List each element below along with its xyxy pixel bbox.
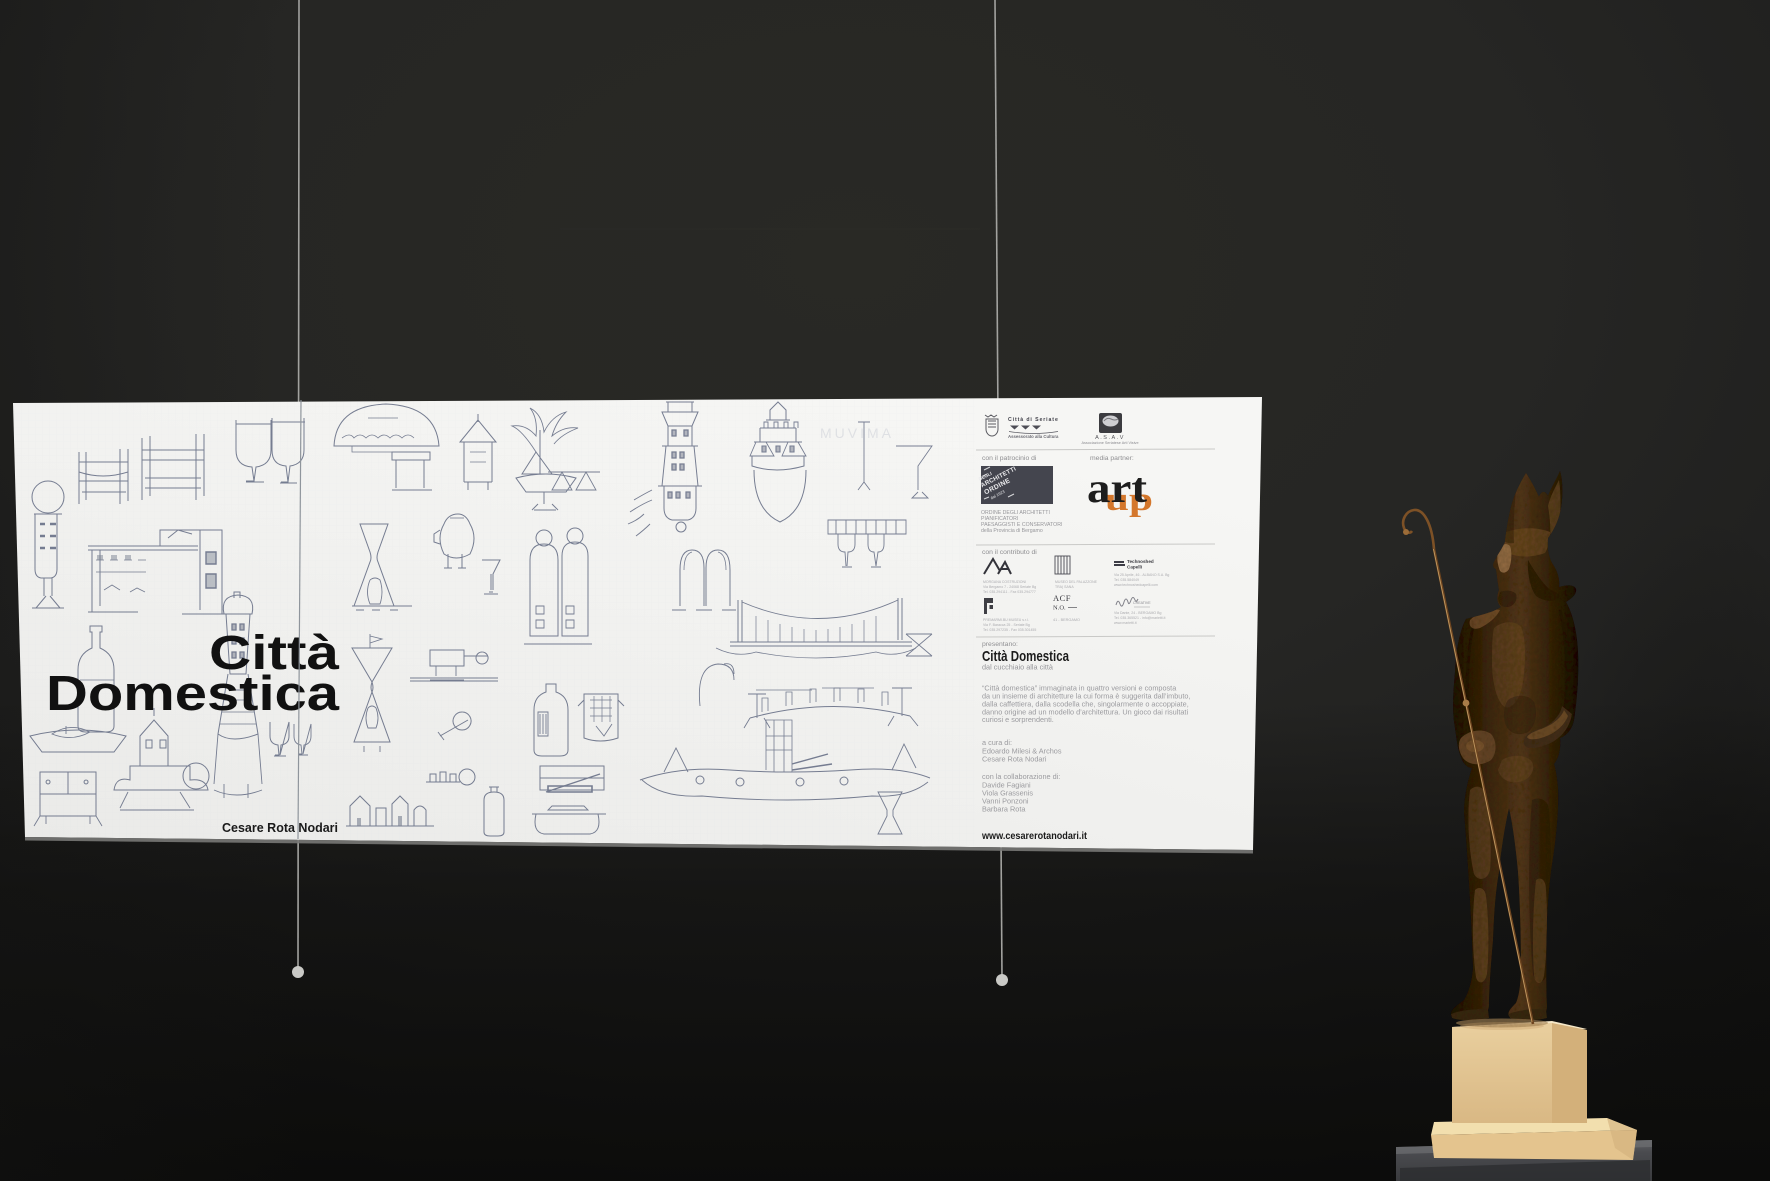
svg-text:Domestica: Domestica	[46, 666, 340, 721]
svg-text:Via Dante, 24 - BERGAMO Bg: Via Dante, 24 - BERGAMO Bg	[1114, 611, 1161, 615]
svg-text:Tel. 035.294111 - Fax 035.2947: Tel. 035.294111 - Fax 035.294777	[983, 590, 1036, 594]
svg-text:www.marietti.it: www.marietti.it	[1114, 621, 1137, 625]
svg-text:con il patrocinio di: con il patrocinio di	[982, 455, 1037, 462]
svg-text:Tel. 035.584049: Tel. 035.584049	[1114, 578, 1139, 582]
svg-text:ACF: ACF	[1053, 593, 1071, 603]
svg-text:Via F. Baracca 25 - Seriate Bg: Via F. Baracca 25 - Seriate Bg	[983, 623, 1030, 627]
svg-text:media partner:: media partner:	[1090, 455, 1134, 462]
svg-text:curiosi e sorprendenti.: curiosi e sorprendenti.	[982, 715, 1054, 724]
svg-text:presentano:: presentano:	[982, 641, 1018, 648]
svg-text:MUSEO DEL PALAZZONE: MUSEO DEL PALAZZONE	[1055, 580, 1098, 584]
svg-text:Barbara Rota: Barbara Rota	[982, 805, 1026, 814]
svg-text:TRA) SANA: TRA) SANA	[1055, 585, 1074, 589]
svg-text:Cesare Rota Nodari: Cesare Rota Nodari	[982, 755, 1047, 764]
svg-text:con il contributo di: con il contributo di	[982, 549, 1037, 556]
svg-text:www.technoshedcapelli.com: www.technoshedcapelli.com	[1114, 583, 1158, 587]
svg-text:Cesare Rota Nodari: Cesare Rota Nodari	[222, 820, 338, 835]
svg-text:41 - BERGAMO: 41 - BERGAMO	[1053, 618, 1080, 622]
svg-text:della Provincia di Bergamo: della Provincia di Bergamo	[981, 528, 1043, 534]
svg-text:Technoshed: Technoshed	[1127, 559, 1154, 564]
svg-text:MUVIMA: MUVIMA	[820, 425, 894, 441]
svg-text:Città di Seriate: Città di Seriate	[1008, 417, 1059, 423]
svg-text:CREATIVE: CREATIVE	[1133, 601, 1151, 605]
svg-text:PREMARMI.BU MUSEU s.r.l.: PREMARMI.BU MUSEU s.r.l.	[983, 618, 1029, 622]
svg-text:N.O.: N.O.	[1053, 605, 1066, 612]
svg-text:art: art	[1087, 466, 1147, 512]
svg-text:Via Bergamo 7 - 24068 Seriate: Via Bergamo 7 - 24068 Seriate Bg	[983, 585, 1036, 589]
svg-text:Capelli: Capelli	[1127, 565, 1142, 570]
svg-text:MORGANA COSTRUZIONI: MORGANA COSTRUZIONI	[983, 580, 1026, 584]
svg-text:www.cesarerotanodari.it: www.cesarerotanodari.it	[981, 830, 1087, 842]
svg-text:Associazione Seriatese Arti Vi: Associazione Seriatese Arti Visive	[1081, 441, 1138, 445]
svg-text:Tel. 035.365521 - info@mariett: Tel. 035.365521 - info@marietti.it	[1114, 616, 1165, 620]
svg-text:Tel. 035.297235 - Fax 035.3014: Tel. 035.297235 - Fax 035.301455	[983, 628, 1036, 632]
svg-text:dal cucchiaio alla città: dal cucchiaio alla città	[982, 663, 1054, 672]
svg-text:Assessorato alla Cultura: Assessorato alla Cultura	[1008, 434, 1059, 439]
svg-text:Via 25 Aprile, 46 - ALBANO S.A: Via 25 Aprile, 46 - ALBANO S.A. Bg	[1114, 573, 1169, 577]
